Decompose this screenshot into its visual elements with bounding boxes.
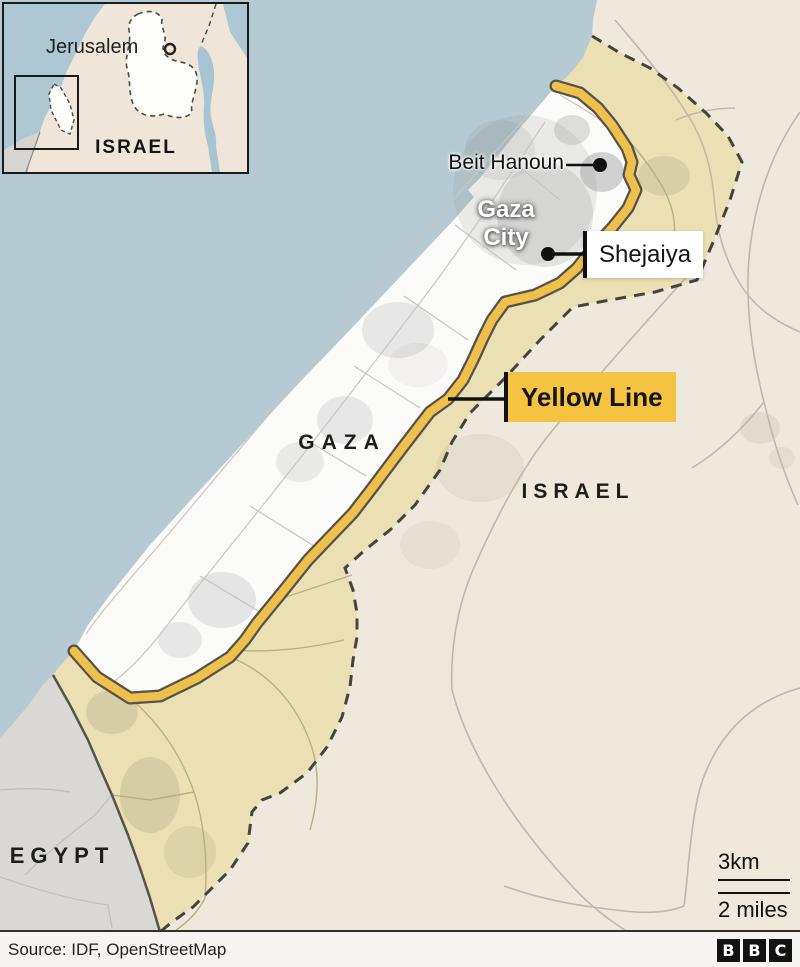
region-label-egypt: EGYPT (6, 843, 118, 869)
jerusalem-label: Jerusalem (46, 36, 138, 59)
scale-km: 3km (718, 850, 790, 874)
region-label-israel: ISRAEL (508, 480, 648, 504)
inset-locator-map: Jerusalem ISRAEL (2, 2, 249, 174)
yellow-line-callout: Yellow Line (504, 372, 676, 422)
bbc-logo: B B C (717, 939, 792, 962)
scale-miles: 2 miles (718, 898, 790, 922)
region-label-gaza: GAZA (282, 431, 402, 455)
inset-israel-label: ISRAEL (66, 137, 206, 159)
bbc-block-3: C (769, 939, 792, 962)
bbc-block-1: B (717, 939, 740, 962)
gaza-city-line2: City (452, 224, 560, 252)
map-graphic: GAZA ISRAEL EGYPT Beit Hanoun Gaza City … (0, 0, 800, 967)
shejaiya-callout: Shejaiya (583, 231, 703, 278)
gaza-city-line1: Gaza (452, 196, 560, 224)
beit-hanoun-dot (593, 158, 607, 172)
shejaiya-label: Shejaiya (599, 241, 691, 269)
scale-bar: 3km 2 miles (718, 850, 790, 922)
yellow-line-label: Yellow Line (521, 382, 663, 413)
beit-hanoun-label: Beit Hanoun (418, 151, 564, 175)
scale-rule (718, 879, 790, 894)
source-attribution: Source: IDF, OpenStreetMap (8, 940, 226, 960)
bbc-block-2: B (743, 939, 766, 962)
footer: Source: IDF, OpenStreetMap B B C (0, 930, 800, 967)
gaza-city-label: Gaza City (452, 196, 560, 252)
